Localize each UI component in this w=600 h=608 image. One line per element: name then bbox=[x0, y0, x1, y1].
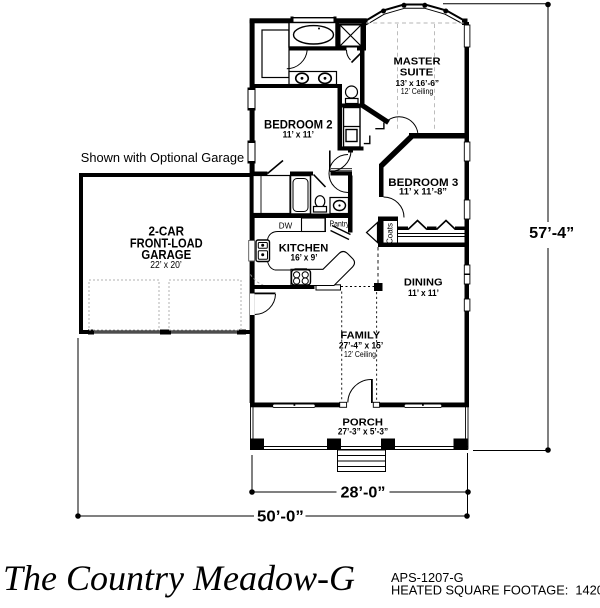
svg-text:50’-0”: 50’-0” bbox=[257, 509, 304, 526]
svg-text:12’ Ceiling: 12’ Ceiling bbox=[401, 87, 434, 96]
svg-text:11’ x 11’: 11’ x 11’ bbox=[408, 288, 439, 298]
svg-text:57’-4”: 57’-4” bbox=[529, 225, 574, 242]
svg-text:HEATED SQUARE FOOTAGE: 1420: HEATED SQUARE FOOTAGE: 1420 bbox=[391, 583, 600, 598]
svg-text:11’ x 11’: 11’ x 11’ bbox=[283, 130, 314, 140]
svg-text:DW: DW bbox=[279, 221, 292, 231]
svg-text:Shown with Optional Garage: Shown with Optional Garage bbox=[81, 150, 244, 165]
svg-text:16’ x 9’: 16’ x 9’ bbox=[291, 253, 318, 264]
svg-text:DINING: DINING bbox=[404, 277, 443, 289]
svg-text:11’ x 11’-8”: 11’ x 11’-8” bbox=[399, 187, 447, 197]
svg-text:28’-0”: 28’-0” bbox=[341, 485, 386, 502]
svg-text:The Country Meadow-G: The Country Meadow-G bbox=[3, 558, 355, 598]
svg-text:22’ x 20’: 22’ x 20’ bbox=[150, 260, 182, 271]
svg-text:27’-3” x 5’-3”: 27’-3” x 5’-3” bbox=[338, 427, 388, 437]
svg-text:FAMILY: FAMILY bbox=[340, 329, 380, 341]
svg-text:SUITE: SUITE bbox=[400, 67, 434, 79]
svg-text:Coats: Coats bbox=[386, 223, 395, 244]
svg-text:Pantry: Pantry bbox=[330, 220, 350, 229]
svg-text:12’ Ceiling: 12’ Ceiling bbox=[344, 350, 376, 359]
